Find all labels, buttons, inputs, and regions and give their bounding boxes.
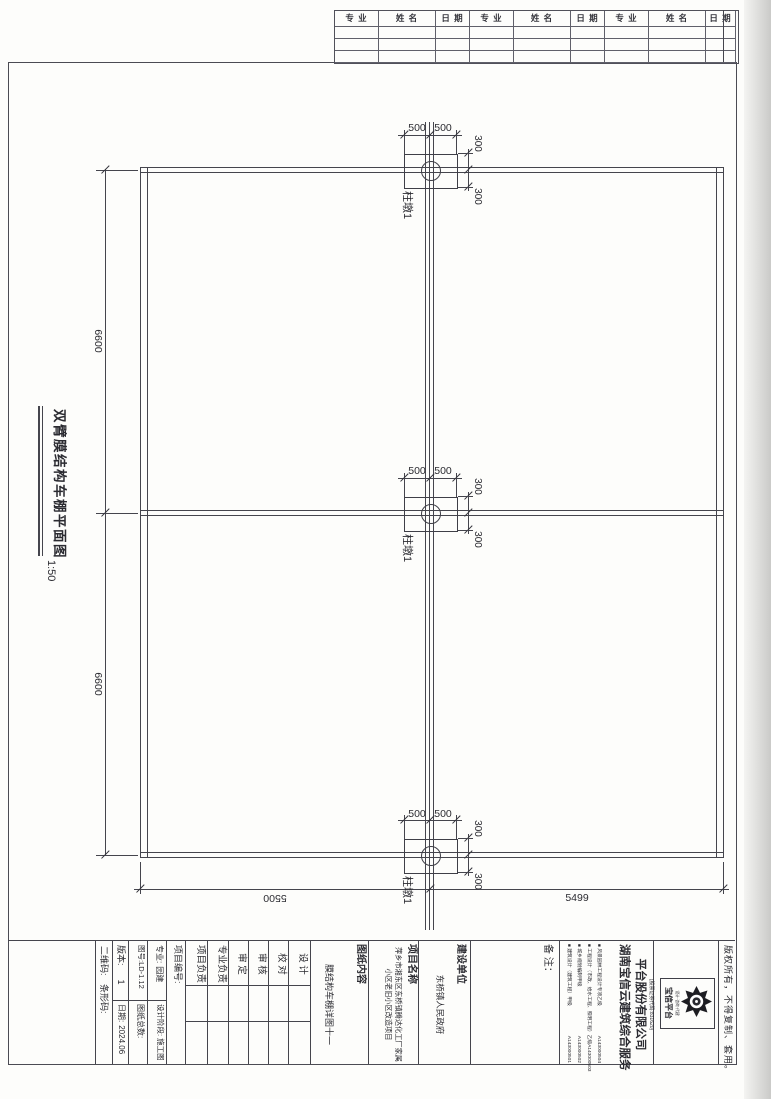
review-col-header: 日 期 xyxy=(436,11,470,27)
dim-label-6600: 6600 xyxy=(92,659,104,709)
sheet-count-label: 图纸总数: xyxy=(131,1004,145,1058)
titleblock-sub-line xyxy=(112,1000,166,1001)
review-empty-cell xyxy=(571,27,605,39)
review-empty-cell xyxy=(605,39,649,51)
review-empty-cell xyxy=(649,51,706,63)
certificate-text: ■ 城乡规划编制甲级 xyxy=(571,944,581,987)
titleblock-sub-line xyxy=(185,1021,310,1022)
dim-label-5499: 5499 xyxy=(549,892,605,904)
titleblock-divider xyxy=(288,940,289,1064)
review-empty-cell xyxy=(470,39,514,51)
sheet-content-value: 膜结构车棚详图十一 xyxy=(322,944,334,1065)
dim-label-300: 300 xyxy=(471,476,483,497)
dim-label-5500: 5500 xyxy=(247,892,303,904)
titleblock-divider xyxy=(128,940,129,1064)
qr-code-label: 二维码: xyxy=(96,946,109,988)
certificate-line: ■ 风景园林工程设计专项乙级A143000504 xyxy=(591,944,601,1063)
review-empty-cell xyxy=(706,39,736,51)
review-empty-cell xyxy=(649,39,706,51)
certificate-line: ■ 城乡规划编制甲级A143000502 xyxy=(571,944,581,1063)
pedestal-circle xyxy=(421,846,441,866)
titleblock-divider xyxy=(559,940,560,1064)
certificate-code: A143000503 xyxy=(581,1044,591,1071)
review-empty-cell xyxy=(706,51,736,63)
pedestal-label: 柱墩1 xyxy=(399,876,413,921)
dim-label-500: 500 xyxy=(430,122,456,134)
review-empty-cell xyxy=(436,27,470,39)
discipline-value: 园建 xyxy=(155,966,164,982)
date-label: 日期: xyxy=(117,1004,126,1022)
project-name-label: 项目名称 xyxy=(401,944,417,992)
certificate-code: A143000501 xyxy=(561,1036,571,1063)
gear-logo-icon xyxy=(681,986,712,1017)
discipline-field: 专业:园建 xyxy=(150,945,164,997)
beam-left-edge xyxy=(140,167,141,858)
client-label: 建设单位 xyxy=(450,944,466,992)
version-field: 版本:1 xyxy=(112,945,126,997)
review-empty-cell xyxy=(706,27,736,39)
titleblock-divider xyxy=(368,940,369,1064)
review-empty-cell xyxy=(514,27,571,39)
project-name-line1: 萍乡市湘东区东桥镇腾达化工厂家属 xyxy=(392,944,402,1065)
review-empty-cell xyxy=(649,27,706,39)
copyright-notice: 版权所有，不得复制、套用。 xyxy=(717,945,733,1099)
date-value: 2024.06 xyxy=(117,1025,126,1054)
review-empty-cell xyxy=(605,51,649,63)
review-empty-cell xyxy=(335,27,379,39)
remark-label: 备 注： xyxy=(538,944,553,994)
drawing-no-field: 图号:LD-1.12 xyxy=(131,945,145,999)
review-col-header: 日 期 xyxy=(571,11,605,27)
version-value: 1 xyxy=(116,980,126,985)
review-col-header: 姓 名 xyxy=(379,11,436,27)
beam-right-edge xyxy=(716,167,717,858)
dim-label-500: 500 xyxy=(404,465,430,477)
logo-name: 宝信平台 xyxy=(663,983,673,1023)
role-reviewer: 审 核 xyxy=(251,944,266,984)
client-value: 东桥镇人民政府 xyxy=(432,944,444,1065)
company-name-line2: 平台股份有限公司 xyxy=(630,944,646,1065)
review-empty-cell xyxy=(335,39,379,51)
sheet-content-label: 图纸内容 xyxy=(350,944,366,990)
scan-shadow xyxy=(744,0,771,1099)
drawing-scale: 1:50 xyxy=(43,560,57,592)
review-table-extra-line xyxy=(723,10,724,62)
dim-line-bottom xyxy=(134,889,729,890)
role-approver: 审 定 xyxy=(231,944,246,984)
titleblock-sub-line xyxy=(185,985,310,986)
review-empty-cell xyxy=(335,51,379,63)
review-table: 专 业 姓 名 日 期 专 业 姓 名 日 期 专 业 姓 名 日 期 xyxy=(334,10,739,64)
pedestal-label: 柱墩1 xyxy=(399,191,413,236)
certificate-text: ■ 建筑设计（建筑工程）甲级 xyxy=(561,944,571,1006)
review-empty-cell xyxy=(571,51,605,63)
review-col-header: 姓 名 xyxy=(514,11,571,27)
dim-label-300: 300 xyxy=(471,133,483,154)
stage-value: 施工图 xyxy=(156,1038,165,1061)
titleblock-divider xyxy=(207,940,208,1064)
titleblock-divider xyxy=(470,940,471,1064)
dim-label-300: 300 xyxy=(471,186,483,207)
company-name-line1: 湖南宝信云建筑综合服务 xyxy=(612,944,630,1065)
review-empty-cell xyxy=(470,51,514,63)
dim-label-300: 300 xyxy=(471,818,483,839)
role-discipline-lead: 专业负责 xyxy=(211,944,226,984)
titleblock-divider xyxy=(185,940,186,1064)
review-empty-cell xyxy=(379,27,436,39)
titleblock-divider xyxy=(166,940,167,1064)
company-subtitle: (股票证券代码:831620) xyxy=(646,944,653,1065)
scanned-drawing-sheet: 专 业 姓 名 日 期 专 业 姓 名 日 期 专 业 姓 名 日 期 6600… xyxy=(0,0,771,1099)
date-field: 日期:2024.06 xyxy=(112,1004,126,1062)
drawing-no-label: 图号: xyxy=(137,945,146,962)
review-col-header: 专 业 xyxy=(605,11,649,27)
pedestal-label: 柱墩1 xyxy=(399,534,413,579)
project-no-label: 项目编号: xyxy=(169,945,183,1003)
titleblock-divider xyxy=(248,940,249,1064)
review-empty-cell xyxy=(514,39,571,51)
sheet-frame xyxy=(8,62,737,1065)
certificate-line: ■ 建筑设计（建筑工程）甲级A143000501 xyxy=(561,944,571,1063)
review-col-header: 专 业 xyxy=(470,11,514,27)
barcode-label: 条形码: xyxy=(96,984,109,1026)
certificate-code: A143000504 xyxy=(591,1036,601,1063)
dim-label-6600: 6600 xyxy=(92,316,104,366)
dim-label-500: 500 xyxy=(404,808,430,820)
review-empty-cell xyxy=(436,39,470,51)
project-name-line2: 小区老旧小区改造项目 xyxy=(382,944,392,1065)
certificate-code: A143000502 xyxy=(571,1036,581,1063)
titleblock-divider xyxy=(228,940,229,1064)
dim-label-500: 500 xyxy=(404,122,430,134)
role-designer: 设 计 xyxy=(292,944,307,984)
review-empty-cell xyxy=(571,39,605,51)
drawing-no-value: LD-1.12 xyxy=(137,962,146,989)
review-empty-cell xyxy=(470,27,514,39)
titleblock-divider xyxy=(147,940,148,1064)
title-underline-thick xyxy=(38,406,40,556)
certificate-line: ■ 工程设计（市政、给水工程、照明工程）乙级A143000503 xyxy=(581,944,591,1063)
review-empty-cell xyxy=(514,51,571,63)
discipline-label: 专业: xyxy=(155,945,164,963)
pedestal-circle xyxy=(421,161,441,181)
beam-right-edge xyxy=(723,167,724,858)
review-empty-cell xyxy=(379,51,436,63)
certificate-text: ■ 工程设计（市政、给水工程、照明工程）乙级 xyxy=(581,944,591,1044)
review-empty-cell xyxy=(605,27,649,39)
dim-label-300: 300 xyxy=(471,529,483,550)
dim-label-500: 500 xyxy=(430,465,456,477)
review-empty-cell xyxy=(379,39,436,51)
titleblock-divider xyxy=(418,940,419,1064)
certificate-text: ■ 风景园林工程设计专项乙级 xyxy=(591,944,601,1006)
dim-label-300: 300 xyxy=(471,871,483,892)
pedestal-circle xyxy=(421,504,441,524)
dim-label-500: 500 xyxy=(430,808,456,820)
review-col-header: 日 期 xyxy=(706,11,736,27)
titleblock-divider xyxy=(310,940,311,1064)
stage-field: 设计阶段:施工图 xyxy=(150,1004,164,1064)
review-col-header: 姓 名 xyxy=(649,11,706,27)
titleblock-divider xyxy=(268,940,269,1064)
role-checker: 校 对 xyxy=(271,944,286,984)
titleblock-top-line xyxy=(8,940,735,941)
logo-tagline: 设计·咨询·代建 xyxy=(674,985,679,1021)
version-label: 版本: xyxy=(116,945,126,966)
review-col-header: 专 业 xyxy=(335,11,379,27)
stage-label: 设计阶段: xyxy=(156,1004,165,1036)
review-empty-cell xyxy=(436,51,470,63)
drawing-title: 双臂膜结构车棚平面图 xyxy=(43,409,67,557)
beam-left-edge xyxy=(147,167,148,858)
role-project-lead: 项目负责 xyxy=(190,944,205,984)
